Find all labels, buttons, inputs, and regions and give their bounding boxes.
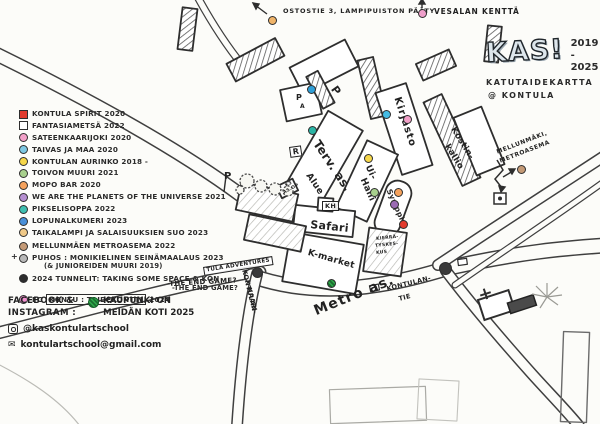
- map-label: Metro as.: [312, 273, 396, 318]
- legend-label-line2: (& JUNIOREIDEN MUURI 2019): [44, 262, 261, 270]
- map-label: P: [296, 94, 302, 102]
- legend-marker-icon: [19, 121, 28, 130]
- legend-label-line2: -THE END GAME?: [172, 284, 261, 292]
- legend-label: SATEENKAARIJOKI 2020: [32, 133, 261, 142]
- legend-item: KONTULAN AURINKO 2018 -: [19, 157, 261, 167]
- kaupunki-note: KAUPUNKI ON MEIDÄN KOTI 2025: [88, 296, 194, 319]
- legend-label: MOPO BAR 2020: [32, 180, 261, 189]
- legend-label: PIKSELISOPPA 2022: [32, 204, 261, 213]
- legend-label-part: KONTULAN AURINKO 2018 -: [32, 157, 148, 166]
- plus-mark: +: [11, 252, 18, 261]
- years-line1: 2019 -: [571, 38, 599, 61]
- legend-label: 2024 TUNNELIT: TAKING SOME SPACE & KON-T…: [32, 274, 261, 292]
- legend-label: KONTULAN AURINKO 2018 -: [32, 157, 261, 166]
- instagram-icon: [8, 324, 18, 334]
- legend-list: KONTULA SPIRIT 2020 FANTASIAMETSÄ 2022 S…: [19, 109, 261, 304]
- envelope-icon: ✉: [8, 341, 16, 350]
- legend-item: + PUHOS : MONIKIELINEN SEINÄMAALAUS 2023…: [19, 253, 261, 270]
- facebook-line: FACEBOOK &: [8, 296, 74, 306]
- legend-marker-icon: [19, 110, 28, 119]
- map-label: A: [300, 104, 305, 110]
- art-location-dot: [307, 85, 316, 94]
- legend-item: FANTASIAMETSÄ 2022: [19, 121, 261, 131]
- map-label: TYSKES-: [375, 243, 399, 250]
- legend-item: TAIKALAMPI JA SALAISUUKSIEN SUO 2023: [19, 228, 261, 238]
- logo-years: 2019 - 2025: [571, 38, 599, 74]
- legend-item: TAIVAS JA MAA 2020: [19, 145, 261, 155]
- legend-marker-icon: [19, 157, 28, 166]
- legend-label: WE ARE THE PLANETS OF THE UNIVERSE 2021: [32, 192, 261, 201]
- legend-label: FANTASIAMETSÄ 2022: [32, 121, 261, 130]
- legend-label: PUHOS : MONIKIELINEN SEINÄMAALAUS 2023(&…: [32, 253, 261, 270]
- legend-item: LOPUNALKUMERI 2023: [19, 216, 261, 226]
- email-row: ✉ kontulartschool@gmail.com: [8, 340, 194, 350]
- kaupunki-line2: MEIDÄN KOTI 2025: [103, 308, 194, 318]
- legend-label-part: TOIVON MUURI 2021: [32, 168, 119, 177]
- art-location-dot: [418, 9, 427, 18]
- legend-marker-icon: [19, 217, 28, 226]
- map-label: Safari: [310, 219, 350, 234]
- map-label: P: [329, 84, 343, 97]
- legend-item: SATEENKAARIJOKI 2020: [19, 133, 261, 143]
- kaupunki-line1: KAUPUNKI ON: [103, 296, 171, 306]
- instagram-line: INSTAGRAM :: [8, 308, 76, 318]
- legend-marker-icon: [19, 242, 28, 251]
- legend-item: TOIVON MUURI 2021: [19, 168, 261, 178]
- art-location-dot: [439, 262, 452, 275]
- art-location-dot: [268, 16, 277, 25]
- legend-marker-icon: [19, 181, 28, 190]
- map-label: KUS: [376, 251, 388, 257]
- art-location-dot: [364, 154, 373, 163]
- legend-label-part: PIKSELISOPPA 2022: [32, 204, 115, 213]
- title-block: KAS! 2019 - 2025 KATUTAIDEKARTTA @ KONTU…: [486, 36, 598, 100]
- art-location-dot: [517, 165, 526, 174]
- legend-marker-icon: [19, 274, 28, 283]
- legend-label-part: MOPO BAR 2020: [32, 180, 101, 189]
- legend-label: TAIVAS JA MAA 2020: [32, 145, 261, 154]
- map-label: OSTOSTIE 3, LAMPIPUISTON PÄÄTY: [283, 8, 435, 15]
- legend-label: TOIVON MUURI 2021: [32, 168, 261, 177]
- green-art-marker-icon: [88, 297, 99, 308]
- legend-item: PIKSELISOPPA 2022: [19, 204, 261, 214]
- legend-label-part: SATEENKAARIJOKI 2020: [32, 133, 131, 142]
- email-text: kontulartschool@gmail.com: [21, 340, 162, 350]
- legend-item: WE ARE THE PLANETS OF THE UNIVERSE 2021: [19, 192, 261, 202]
- art-location-dot: [308, 126, 317, 135]
- art-location-dot: [370, 188, 379, 197]
- map-label: TIE: [398, 293, 411, 302]
- legend-label: KONTULA SPIRIT 2020: [32, 109, 261, 118]
- art-location-dot: [382, 110, 391, 119]
- street-art-map: OSTOSTIE 3, LAMPIPUISTON PÄÄTYVESALAN KE…: [0, 0, 600, 424]
- art-location-dot: [399, 220, 408, 229]
- art-location-dot: [327, 279, 336, 288]
- contact-block: FACEBOOK & INSTAGRAM : KAUPUNKI ON MEIDÄ…: [8, 296, 194, 350]
- map-label: Alue: [304, 172, 325, 197]
- legend-label-part: PUHOS : MONIKIELINEN SEINÄMAALAUS 2023: [32, 253, 224, 262]
- legend-label-part: LOPUNALKUMERI 2023: [32, 216, 127, 225]
- legend-label-part: TAIKALAMPI JA SALAISUUKSIEN SUO 2023: [32, 228, 208, 237]
- legend-item: KONTULA SPIRIT 2020: [19, 109, 261, 119]
- map-label: K-market: [307, 249, 356, 271]
- map-location: @ KONTULA: [488, 91, 598, 100]
- years-line2: 2025: [571, 62, 599, 73]
- legend-marker-icon: [19, 254, 28, 263]
- legend-item: MOPO BAR 2020: [19, 180, 261, 190]
- legend-marker-icon: [19, 145, 28, 154]
- map-label: R: [289, 145, 303, 158]
- map-label: KH: [322, 201, 339, 211]
- legend-label: LOPUNALKUMERI 2023: [32, 216, 261, 225]
- legend-marker-icon: [19, 205, 28, 214]
- legend-label-part: 2024 TUNNELIT: TAKING SOME SPACE & KON: [32, 274, 220, 283]
- legend-label-part: FANTASIAMETSÄ 2022: [32, 121, 125, 130]
- legend-marker-icon: [19, 169, 28, 178]
- social-handle: @kaskontulartschool: [8, 324, 194, 334]
- art-location-dot: [403, 115, 412, 124]
- legend-marker-icon: [19, 228, 28, 237]
- legend: KONTULA SPIRIT 2020 FANTASIAMETSÄ 2022 S…: [19, 109, 261, 306]
- legend-label-part: WE ARE THE PLANETS OF THE UNIVERSE 2021: [32, 192, 226, 201]
- legend-marker-icon: [19, 133, 28, 142]
- kaupunki-text: KAUPUNKI ON MEIDÄN KOTI 2025: [103, 296, 194, 319]
- kas-logo: KAS!: [485, 34, 564, 69]
- legend-label: MELLUNMÄEN METROASEMA 2022: [32, 241, 261, 250]
- handle-text: @kaskontulartschool: [23, 324, 129, 334]
- legend-label: TAIKALAMPI JA SALAISUUKSIEN SUO 2023: [32, 228, 261, 237]
- art-location-dot: [394, 188, 403, 197]
- art-location-dot: [390, 200, 399, 209]
- legend-label-part: KONTULA SPIRIT 2020: [32, 109, 125, 118]
- legend-item: 2024 TUNNELIT: TAKING SOME SPACE & KON-T…: [19, 274, 261, 292]
- legend-item: MELLUNMÄEN METROASEMA 2022: [19, 241, 261, 251]
- legend-label-part: TAIVAS JA MAA 2020: [32, 145, 118, 154]
- map-subtitle: KATUTAIDEKARTTA: [486, 78, 598, 87]
- facebook-instagram-label: FACEBOOK & INSTAGRAM :: [8, 296, 76, 319]
- legend-marker-icon: [19, 193, 28, 202]
- map-label: VESALAN KENTTÄ: [434, 8, 520, 16]
- legend-label-part: MELLUNMÄEN METROASEMA 2022: [32, 241, 175, 250]
